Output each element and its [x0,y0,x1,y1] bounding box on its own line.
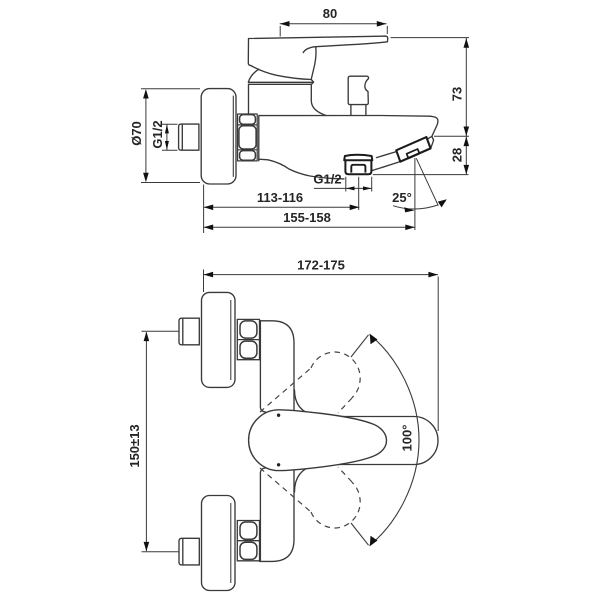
svg-text:155-158: 155-158 [283,210,331,225]
svg-text:150±13: 150±13 [127,424,142,467]
svg-text:73: 73 [450,87,465,101]
svg-text:113-116: 113-116 [257,190,303,205]
svg-text:80: 80 [323,6,337,21]
svg-text:100°: 100° [400,425,415,452]
svg-text:G1/2: G1/2 [313,172,341,187]
svg-text:Ø70: Ø70 [129,121,144,146]
svg-text:28: 28 [450,148,465,162]
svg-text:G1/2: G1/2 [150,120,165,148]
svg-text:25°: 25° [392,190,412,205]
svg-text:172-175: 172-175 [297,258,345,273]
